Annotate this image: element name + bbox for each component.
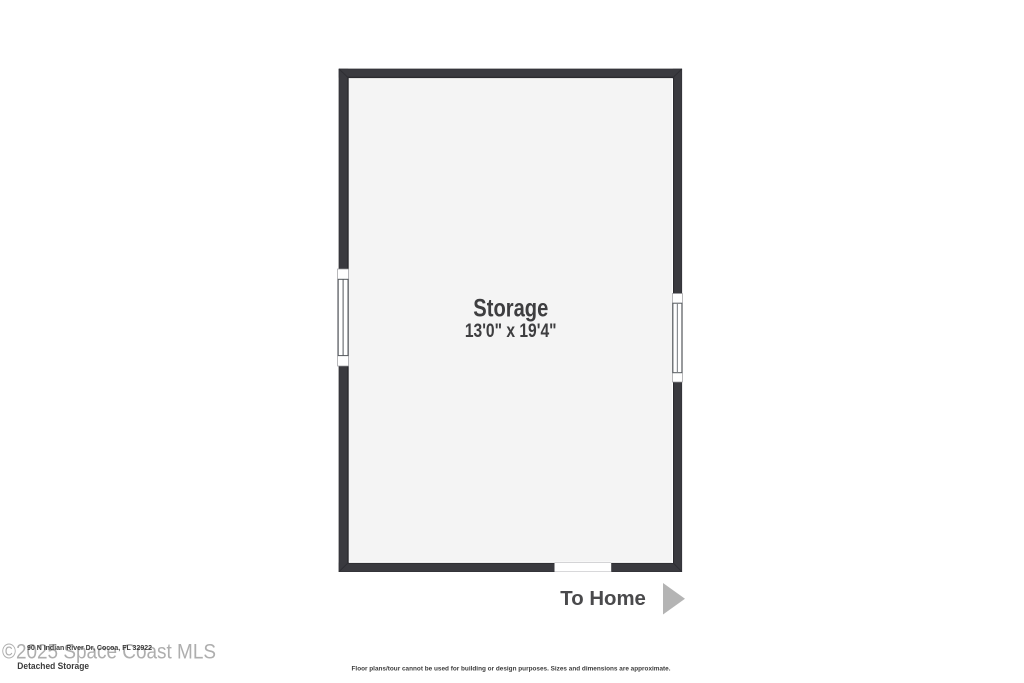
svg-text:13'0" x 19'4": 13'0" x 19'4" (465, 321, 557, 342)
svg-text:90 N Indian River Dr, Cocoa, F: 90 N Indian River Dr, Cocoa, FL 32922 (27, 645, 152, 652)
svg-text:To Home: To Home (560, 587, 646, 610)
svg-text:Detached Storage: Detached Storage (17, 661, 89, 671)
svg-text:Storage: Storage (473, 295, 548, 323)
svg-text:Floor plans/tour cannot be use: Floor plans/tour cannot be used for buil… (352, 666, 671, 673)
